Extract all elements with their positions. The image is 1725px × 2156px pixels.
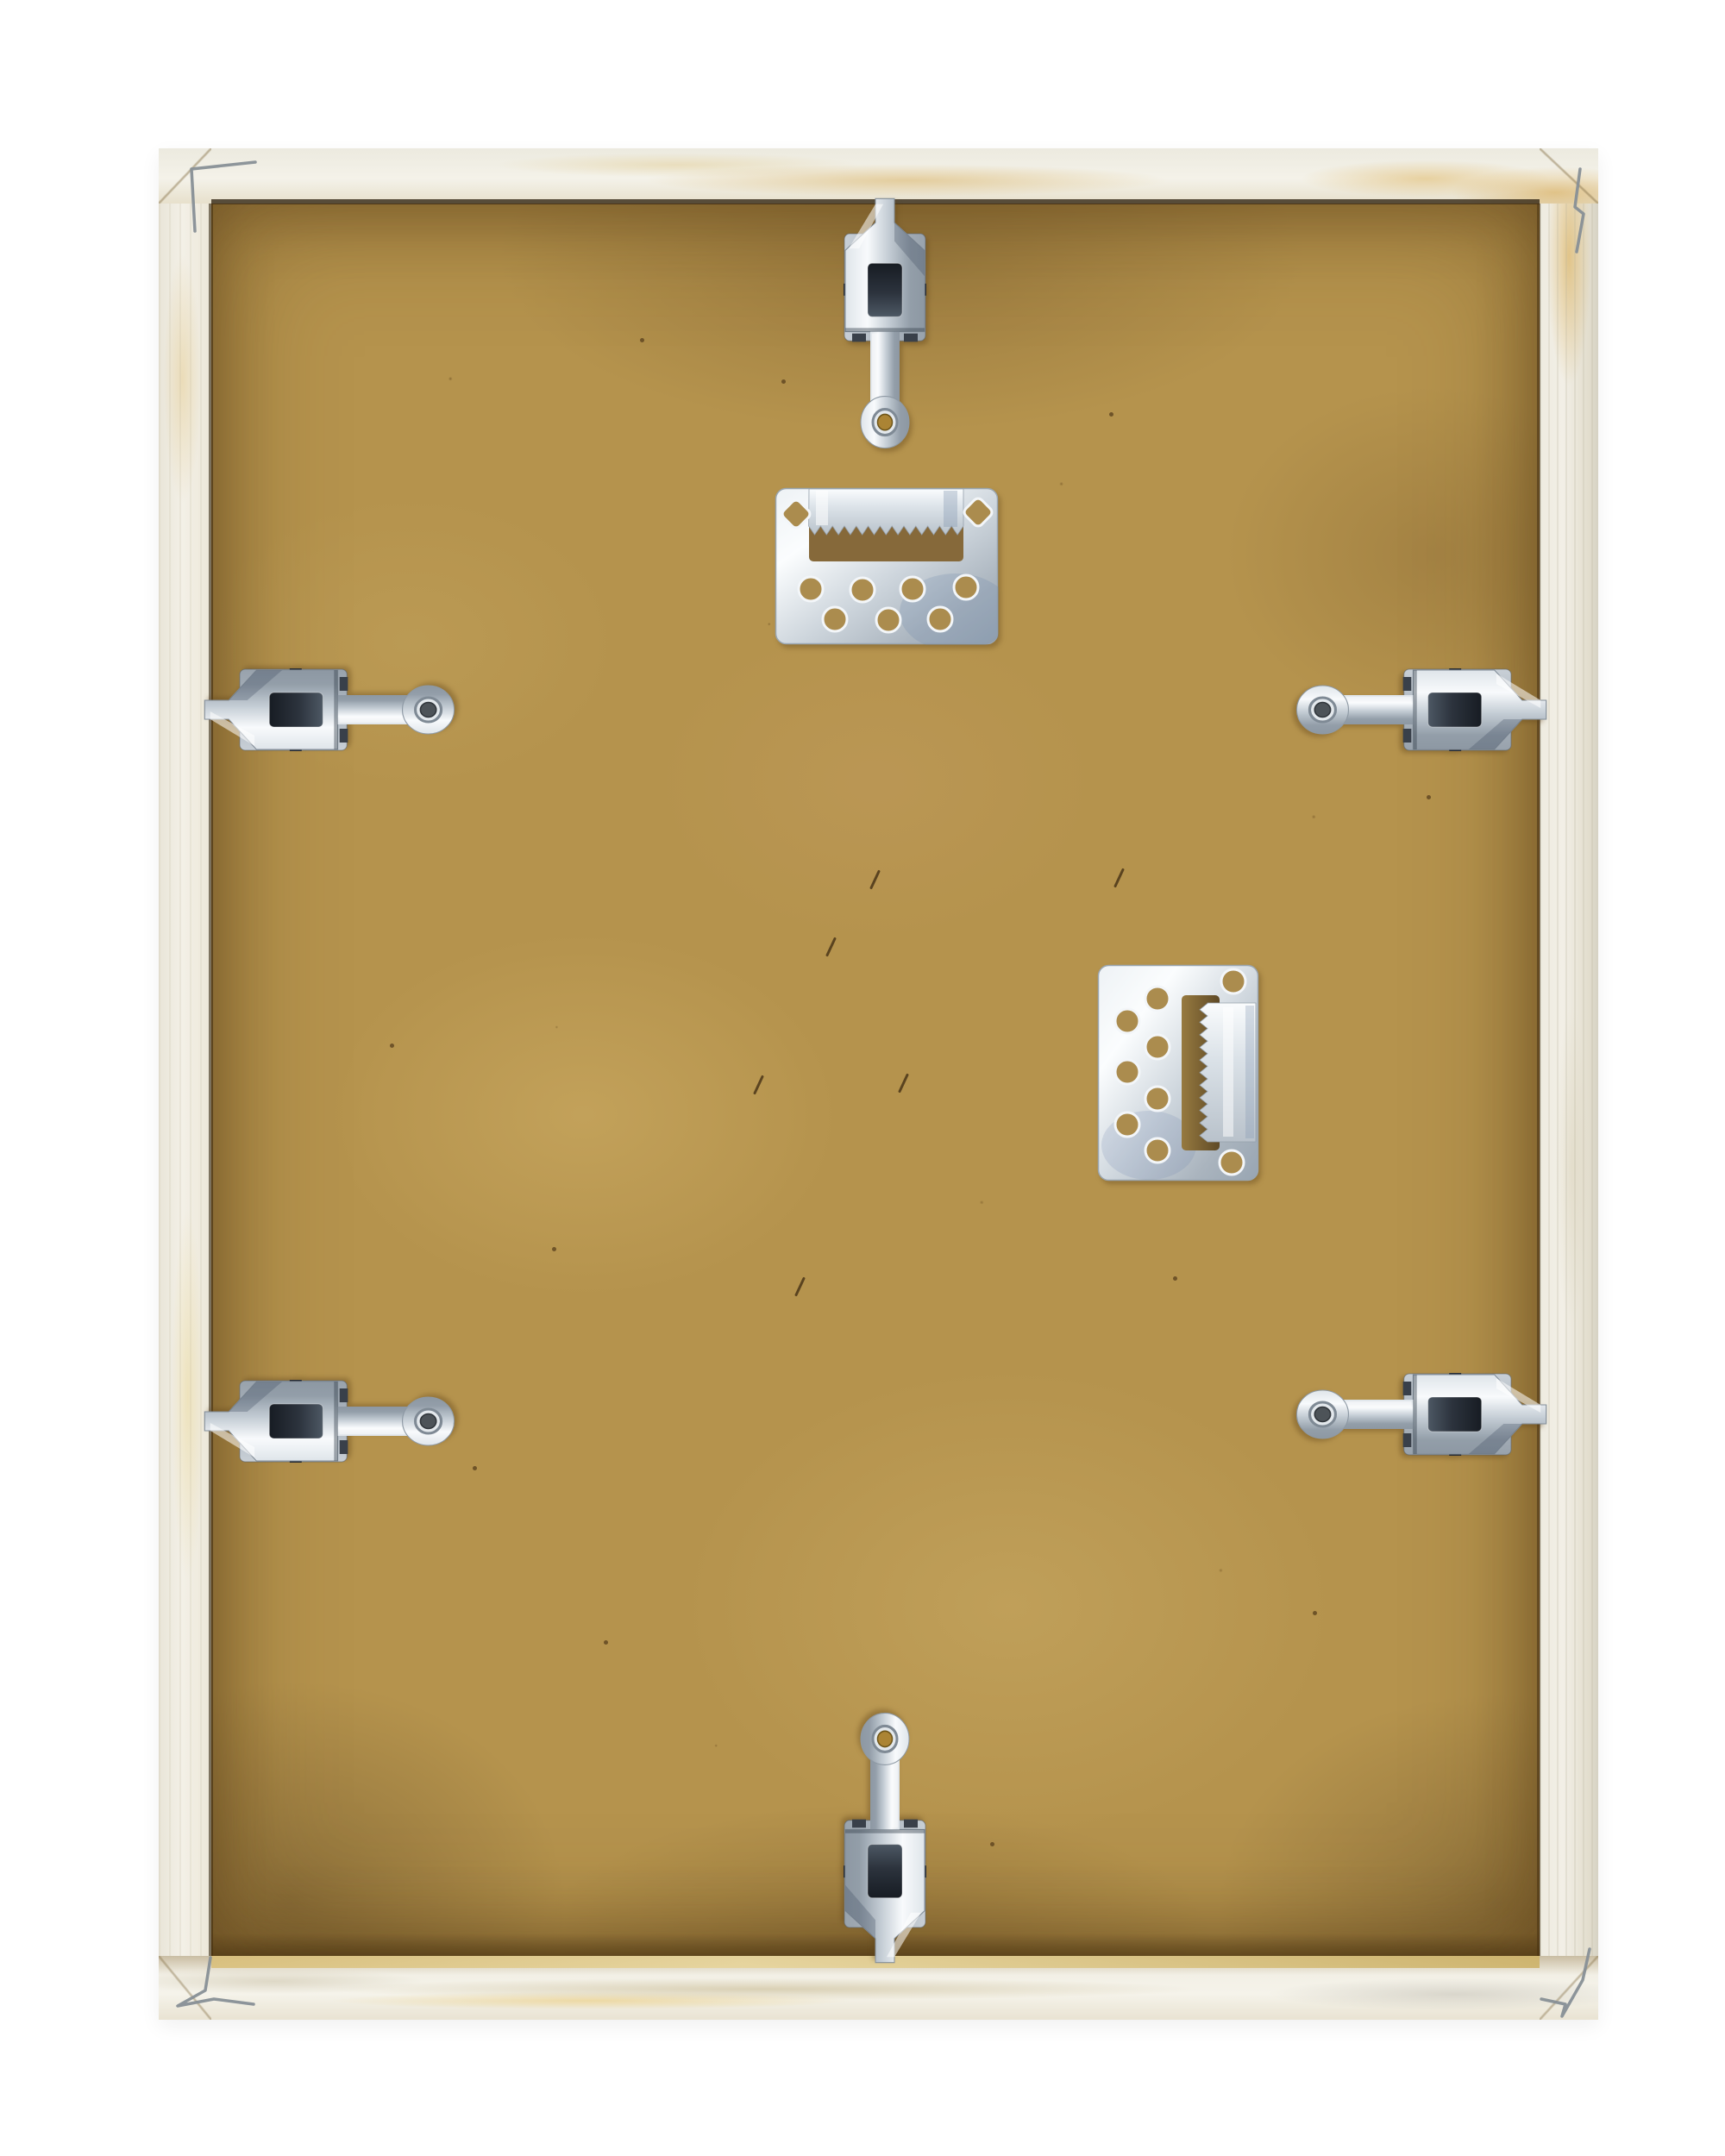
hanger-hole bbox=[954, 575, 978, 599]
corner-staple-bottom-right bbox=[1531, 1940, 1613, 2022]
board-speck bbox=[1427, 795, 1431, 799]
hanger-hole bbox=[1115, 1009, 1139, 1033]
flexi-clip-icon bbox=[201, 667, 460, 753]
flexi-clip-icon bbox=[1291, 667, 1550, 753]
board-speck bbox=[640, 338, 644, 342]
board-speck bbox=[552, 1247, 556, 1251]
board-speck bbox=[1173, 1276, 1177, 1281]
hanger-hole bbox=[823, 607, 847, 631]
hanger-hole bbox=[1145, 1035, 1170, 1059]
board-speck bbox=[781, 379, 786, 384]
corner-staple-top-right bbox=[1552, 164, 1604, 259]
hanger-corner-hole bbox=[1221, 969, 1245, 993]
sawtooth-hanger-side bbox=[1097, 964, 1259, 1181]
hanger-hole bbox=[900, 577, 925, 601]
hanger-corner-hole bbox=[1220, 1150, 1244, 1175]
hanger-hole bbox=[1145, 987, 1170, 1011]
screw-hole bbox=[1314, 703, 1330, 718]
hanger-hole bbox=[850, 578, 875, 602]
flexi-clip-lower-left bbox=[201, 1378, 460, 1464]
flexi-clip-upper-left bbox=[201, 667, 460, 753]
board-speck bbox=[1313, 1611, 1317, 1615]
photo-back-of-picture-frame bbox=[0, 0, 1725, 2156]
hanger-hole bbox=[1115, 1112, 1139, 1137]
screw-brass bbox=[878, 1731, 893, 1746]
mdf-backing-board bbox=[211, 204, 1540, 1956]
corner-staple-bottom-left bbox=[164, 1951, 263, 2024]
flexi-clip-icon bbox=[842, 1708, 928, 1966]
flexi-clip-upper-right bbox=[1291, 667, 1550, 753]
board-speck bbox=[390, 1044, 394, 1048]
frame-wood-right bbox=[1540, 204, 1598, 1956]
sawtooth-hanger-top bbox=[775, 487, 999, 645]
board-speck bbox=[604, 1640, 608, 1645]
screw-brass bbox=[878, 414, 893, 429]
board-speck bbox=[473, 1466, 477, 1470]
screw-hole bbox=[1314, 1407, 1330, 1422]
screw-hole bbox=[420, 703, 436, 718]
flexi-clip-bottom-center bbox=[842, 1708, 928, 1966]
board-speck bbox=[1109, 412, 1113, 417]
flexi-clip-icon bbox=[842, 195, 928, 454]
hanger-hole bbox=[1145, 1087, 1170, 1111]
screw-hole bbox=[420, 1414, 436, 1429]
hanger-hole bbox=[876, 608, 900, 632]
rabbet-shadow-left bbox=[209, 204, 213, 1956]
rabbet-shadow-right bbox=[1537, 204, 1540, 1956]
board-speck bbox=[990, 1842, 994, 1846]
hanger-hole bbox=[799, 577, 823, 601]
hanger-hole bbox=[1145, 1138, 1170, 1163]
corner-staple-top-left bbox=[169, 152, 264, 238]
flexi-clip-icon bbox=[1291, 1371, 1550, 1457]
flexi-clip-top-center bbox=[842, 195, 928, 454]
flexi-clip-lower-right bbox=[1291, 1371, 1550, 1457]
hanger-hole bbox=[1115, 1060, 1139, 1084]
frame-wood-left bbox=[159, 204, 211, 1956]
hanger-hole bbox=[928, 607, 952, 631]
flexi-clip-icon bbox=[201, 1378, 460, 1464]
